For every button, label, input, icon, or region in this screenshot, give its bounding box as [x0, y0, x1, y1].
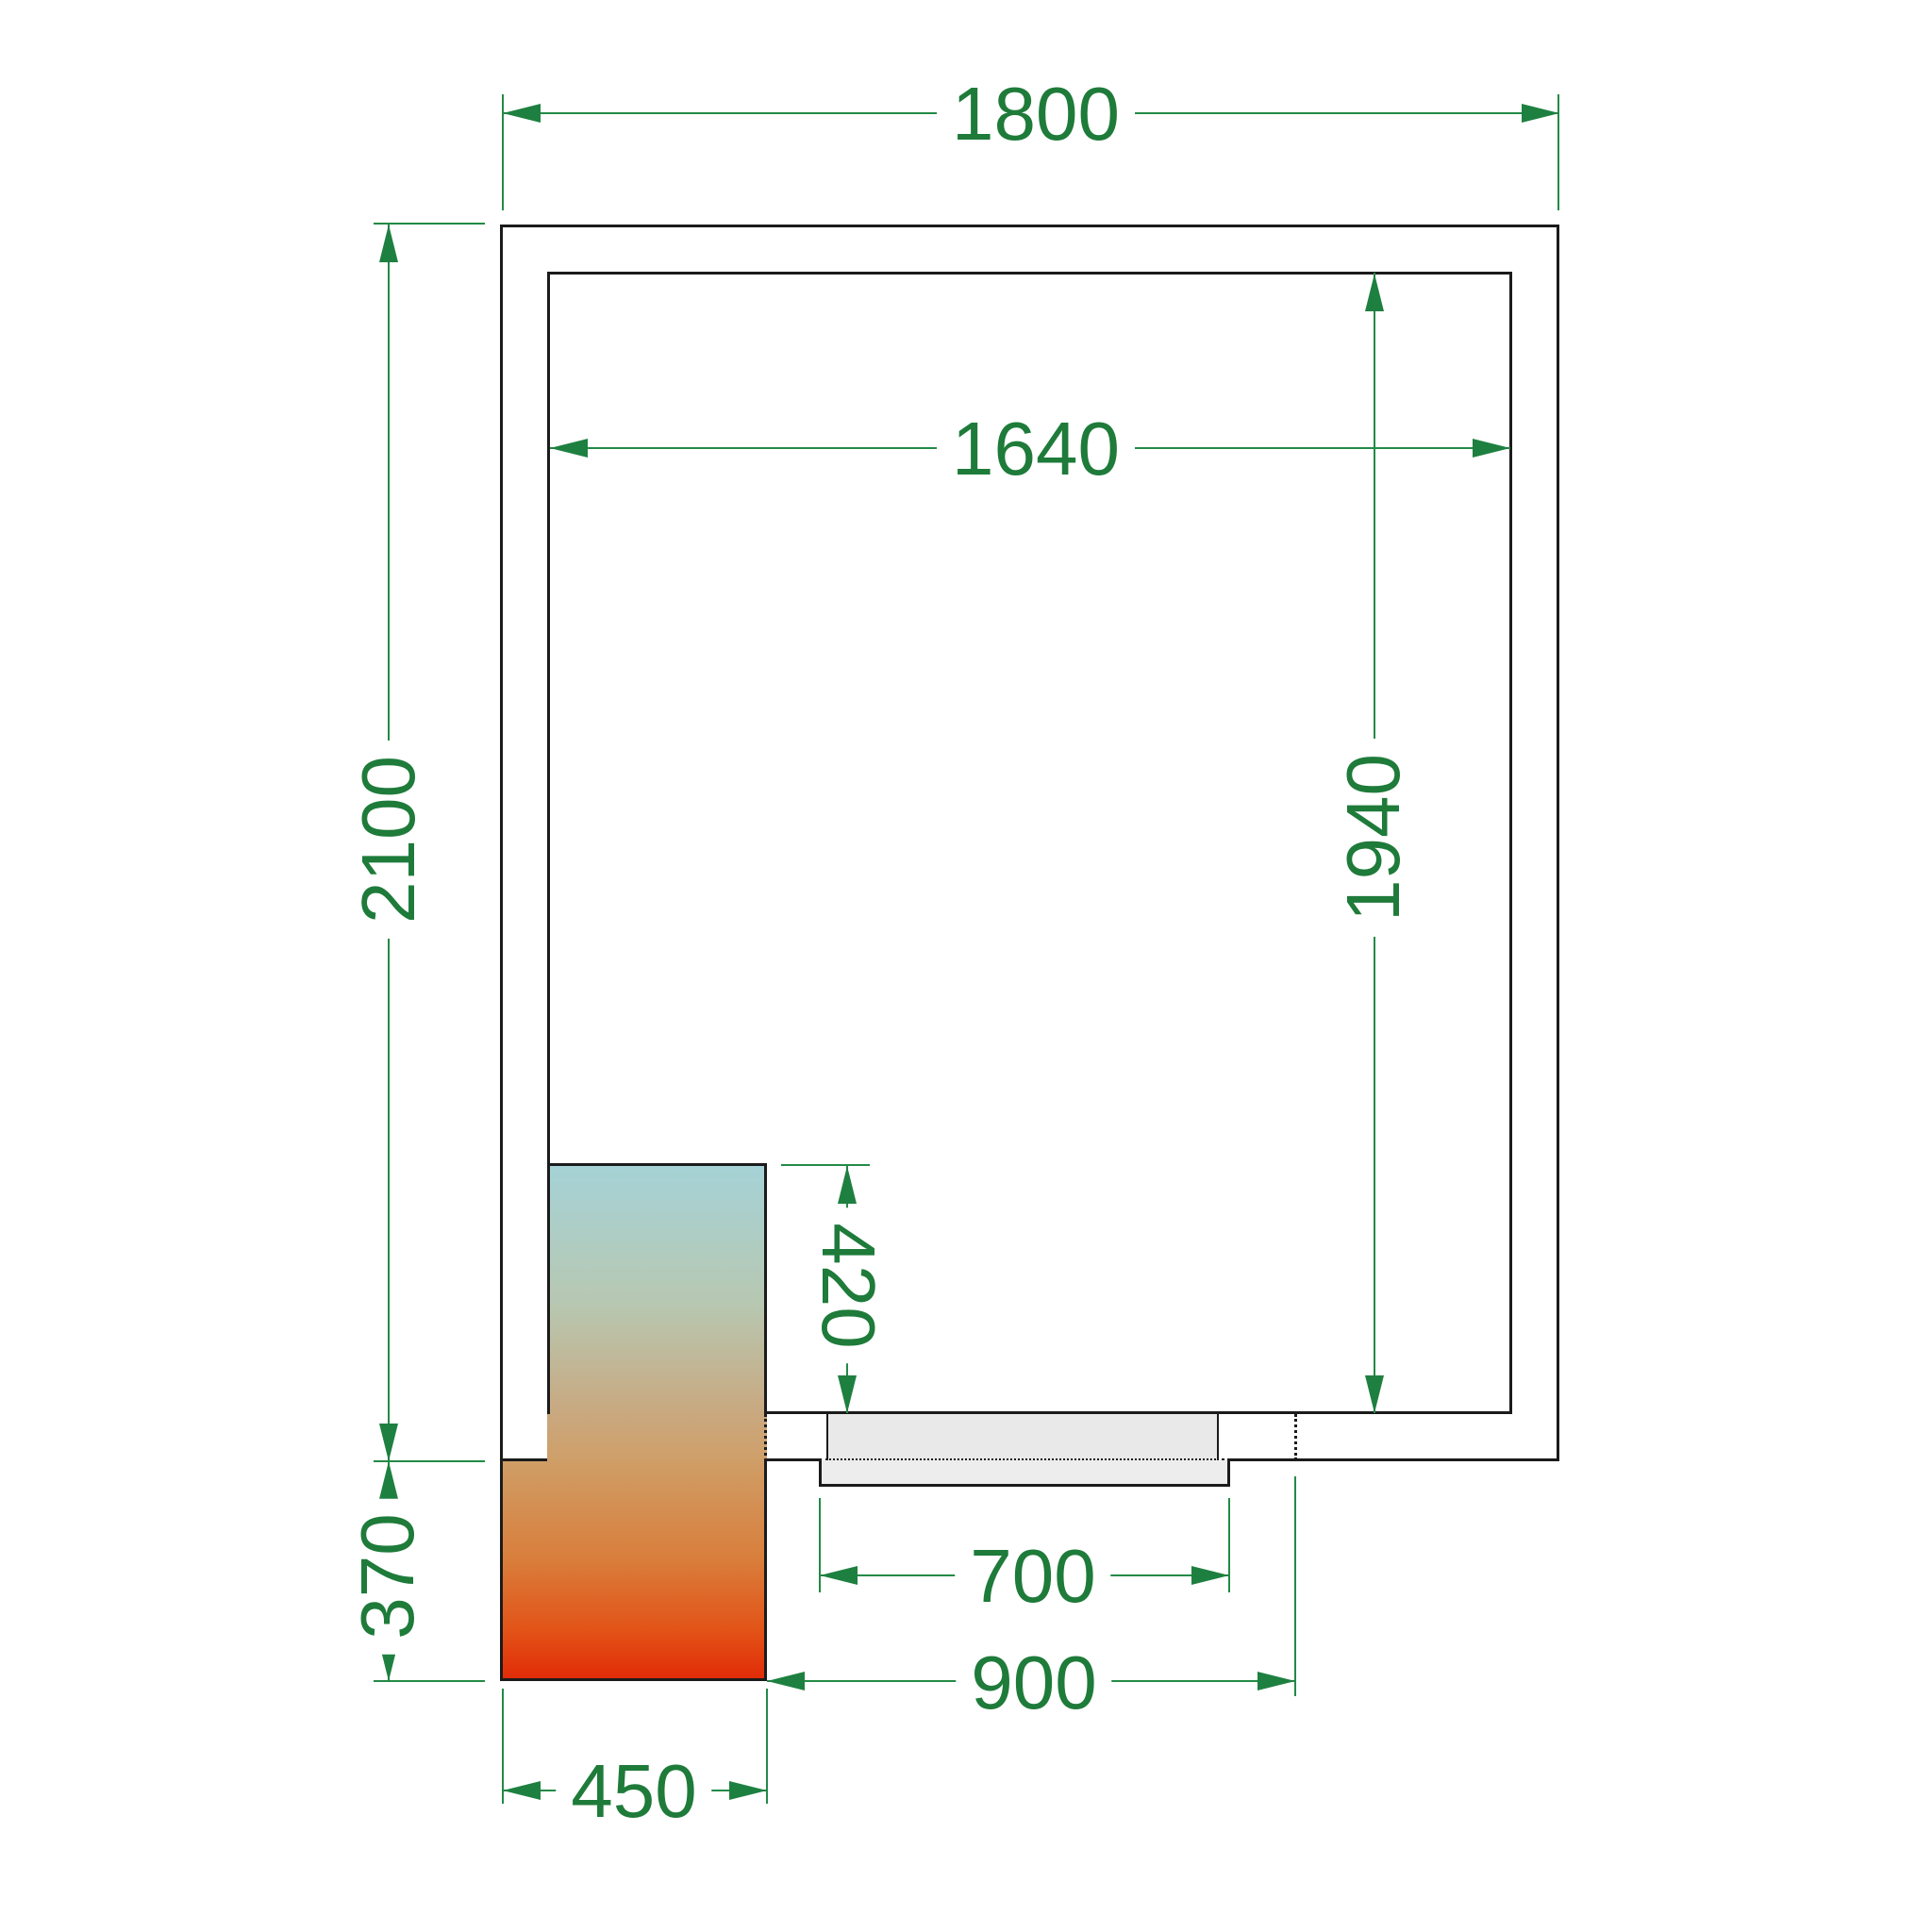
arrowhead-left — [767, 1672, 805, 1690]
dimension-text-900: 900 — [956, 1641, 1111, 1724]
arrowhead-right — [1257, 1672, 1295, 1690]
arrowhead-left — [820, 1566, 858, 1585]
dimension-text-1940: 1940 — [1332, 739, 1415, 937]
dimension-text-1800: 1800 — [937, 73, 1135, 156]
floor-plan-drawing: 1800 1640 2100 370 1940 420 — [0, 0, 1932, 1932]
arrowhead-down — [1365, 1375, 1384, 1413]
door-opening-hidden-edge — [1294, 1414, 1297, 1460]
extension-line — [1294, 1476, 1296, 1696]
outer-wall-bottom-edge-right — [1230, 1458, 1559, 1461]
arrowhead-up — [379, 225, 398, 262]
arrowhead-left — [550, 439, 588, 458]
refrigeration-unit-indoor-section — [547, 1163, 767, 1414]
arrowhead-left — [503, 104, 541, 123]
arrowhead-right — [1191, 1566, 1229, 1585]
dimension-text-370: 370 — [346, 1498, 429, 1654]
arrowhead-up — [379, 1461, 398, 1499]
arrowhead-down — [379, 1424, 398, 1461]
arrowhead-right — [1522, 104, 1559, 123]
door-opening-slab — [826, 1414, 1219, 1460]
arrowhead-right — [729, 1781, 767, 1800]
arrowhead-left — [503, 1781, 541, 1800]
dimension-text-1640: 1640 — [937, 408, 1135, 491]
door-leaf — [819, 1460, 1230, 1487]
arrowhead-up — [1365, 274, 1384, 311]
dimension-text-420: 420 — [807, 1207, 890, 1363]
dimension-text-700: 700 — [955, 1535, 1110, 1618]
refrigeration-unit-inwall-section — [547, 1414, 767, 1461]
dimension-text-2100: 2100 — [347, 741, 430, 939]
arrowhead-up — [838, 1166, 857, 1204]
arrowhead-right — [1473, 439, 1510, 458]
refrigeration-unit-outdoor-section — [500, 1461, 767, 1681]
outer-wall-bottom-edge-mid — [767, 1458, 819, 1461]
dimension-text-450: 450 — [556, 1750, 711, 1833]
arrowhead-down — [838, 1375, 857, 1413]
